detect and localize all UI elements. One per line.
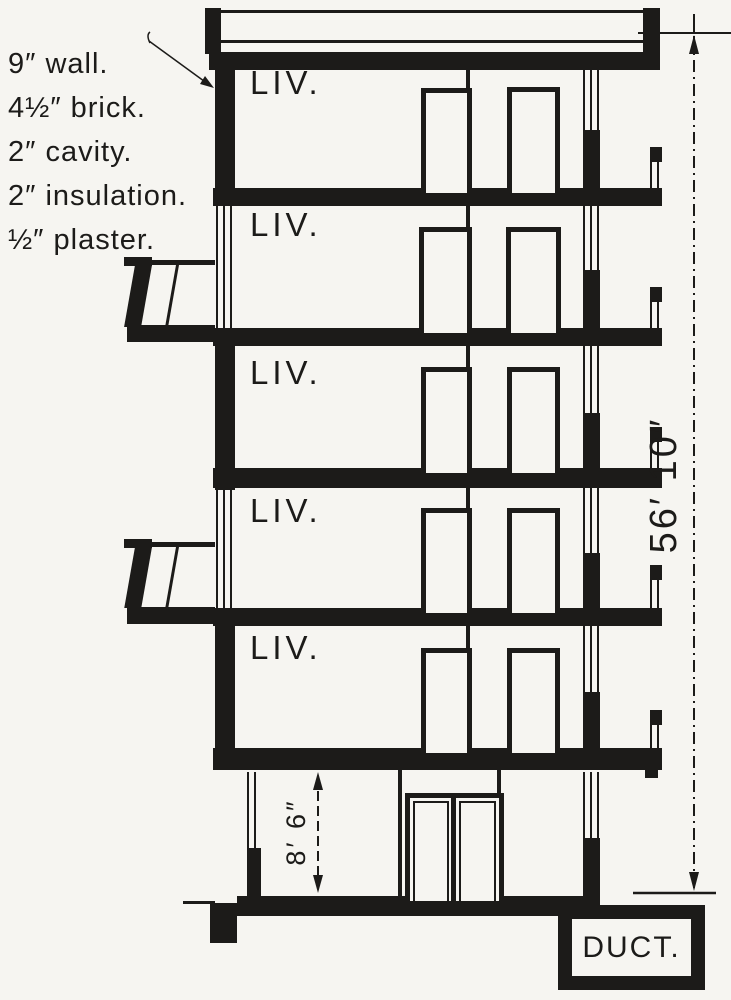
balustrade-cap-floor5 xyxy=(650,710,662,725)
ground-dim-arrow-top xyxy=(313,772,323,790)
overall-dim-arrow-top xyxy=(689,35,699,54)
overall-dim-arrow-bottom xyxy=(689,872,699,891)
note-line-5: ½″ plaster. xyxy=(8,218,187,262)
room-label-floor5: LIV. xyxy=(250,629,322,667)
balcony1-divider xyxy=(165,265,179,327)
right-wall-spandrel-floor5 xyxy=(583,692,600,752)
left-wall-floor5 xyxy=(215,624,235,770)
note-line-1: 9″ wall. xyxy=(8,42,187,86)
right-wall-spandrel-floor2 xyxy=(583,270,600,330)
roof-line-soffit xyxy=(221,40,647,43)
right-wall-window-floor1 xyxy=(583,70,600,130)
note-line-3: 2″ cavity. xyxy=(8,130,187,174)
leader-arrowhead xyxy=(200,76,214,88)
ground-storey-dimension: 8′ 6″ xyxy=(280,762,312,902)
door-left-floor1 xyxy=(421,88,472,193)
room-label-floor2: LIV. xyxy=(250,206,322,244)
door-left-floor4 xyxy=(421,508,472,613)
balustrade-cap-floor2 xyxy=(650,287,662,302)
entrance-door-left xyxy=(405,793,457,901)
room-label-floor1: LIV. xyxy=(250,64,322,102)
door-right-floor4 xyxy=(507,508,560,613)
room-label-floor4: LIV. xyxy=(250,492,322,530)
balcony1-front-wall xyxy=(124,265,152,327)
door-right-floor2 xyxy=(506,227,561,333)
balcony2-divider xyxy=(165,547,179,608)
parapet-left xyxy=(205,8,221,54)
door-left-floor5 xyxy=(421,648,472,753)
overall-height-dimension: 56′ 10″ xyxy=(643,375,685,595)
ground-left-glazing xyxy=(247,772,261,848)
right-wall-window-floor4 xyxy=(583,488,600,553)
door-right-floor3 xyxy=(507,367,560,473)
left-wall-floor1 xyxy=(215,68,235,190)
entrance-door-right xyxy=(451,793,504,901)
door-left-floor3 xyxy=(421,367,472,473)
right-stub-ground xyxy=(645,768,658,778)
wall-spec-note: 9″ wall. 4½″ brick. 2″ cavity. 2″ insula… xyxy=(8,42,187,262)
foundation-block xyxy=(210,903,237,943)
left-wall-window-floor4 xyxy=(216,488,234,609)
left-wall-floor3 xyxy=(215,344,235,490)
right-wall-spandrel-floor3 xyxy=(583,413,600,471)
duct-label: DUCT. xyxy=(572,919,691,976)
ground-partition-left xyxy=(398,770,402,896)
balcony1-slab xyxy=(127,325,215,342)
roof-fascia-right xyxy=(643,8,660,70)
door-left-floor2 xyxy=(419,227,472,333)
ground-dim-arrow-bottom xyxy=(313,875,323,893)
right-wall-window-floor5 xyxy=(583,626,600,692)
balustrade-rail-floor2 xyxy=(650,302,662,330)
note-line-4: 2″ insulation. xyxy=(8,174,187,218)
entrance-door-left-leaf xyxy=(413,801,449,901)
note-line-2: 4½″ brick. xyxy=(8,86,187,130)
room-label-floor3: LIV. xyxy=(250,354,322,392)
ground-left-wall xyxy=(247,848,261,898)
roof-line-top xyxy=(221,10,658,13)
ground-storey-dim-line xyxy=(313,772,323,893)
right-wall-window-floor3 xyxy=(583,346,600,413)
section-drawing: 9″ wall. 4½″ brick. 2″ cavity. 2″ insula… xyxy=(0,0,731,1000)
balustrade-cap-floor1 xyxy=(650,147,662,162)
entrance-door-right-leaf xyxy=(459,801,496,901)
balcony2-front-wall xyxy=(124,547,152,608)
door-right-floor1 xyxy=(507,87,560,193)
door-right-floor5 xyxy=(507,648,560,753)
ground-right-wall xyxy=(583,838,600,896)
balustrade-rail-floor1 xyxy=(650,162,662,190)
right-wall-spandrel-floor1 xyxy=(583,130,600,190)
left-wall-window-floor2 xyxy=(216,206,234,328)
ground-right-glazing xyxy=(583,772,600,838)
right-wall-spandrel-floor4 xyxy=(583,553,600,611)
balcony2-slab xyxy=(127,607,215,624)
right-wall-window-floor2 xyxy=(583,206,600,270)
balustrade-rail-floor5 xyxy=(650,725,662,750)
